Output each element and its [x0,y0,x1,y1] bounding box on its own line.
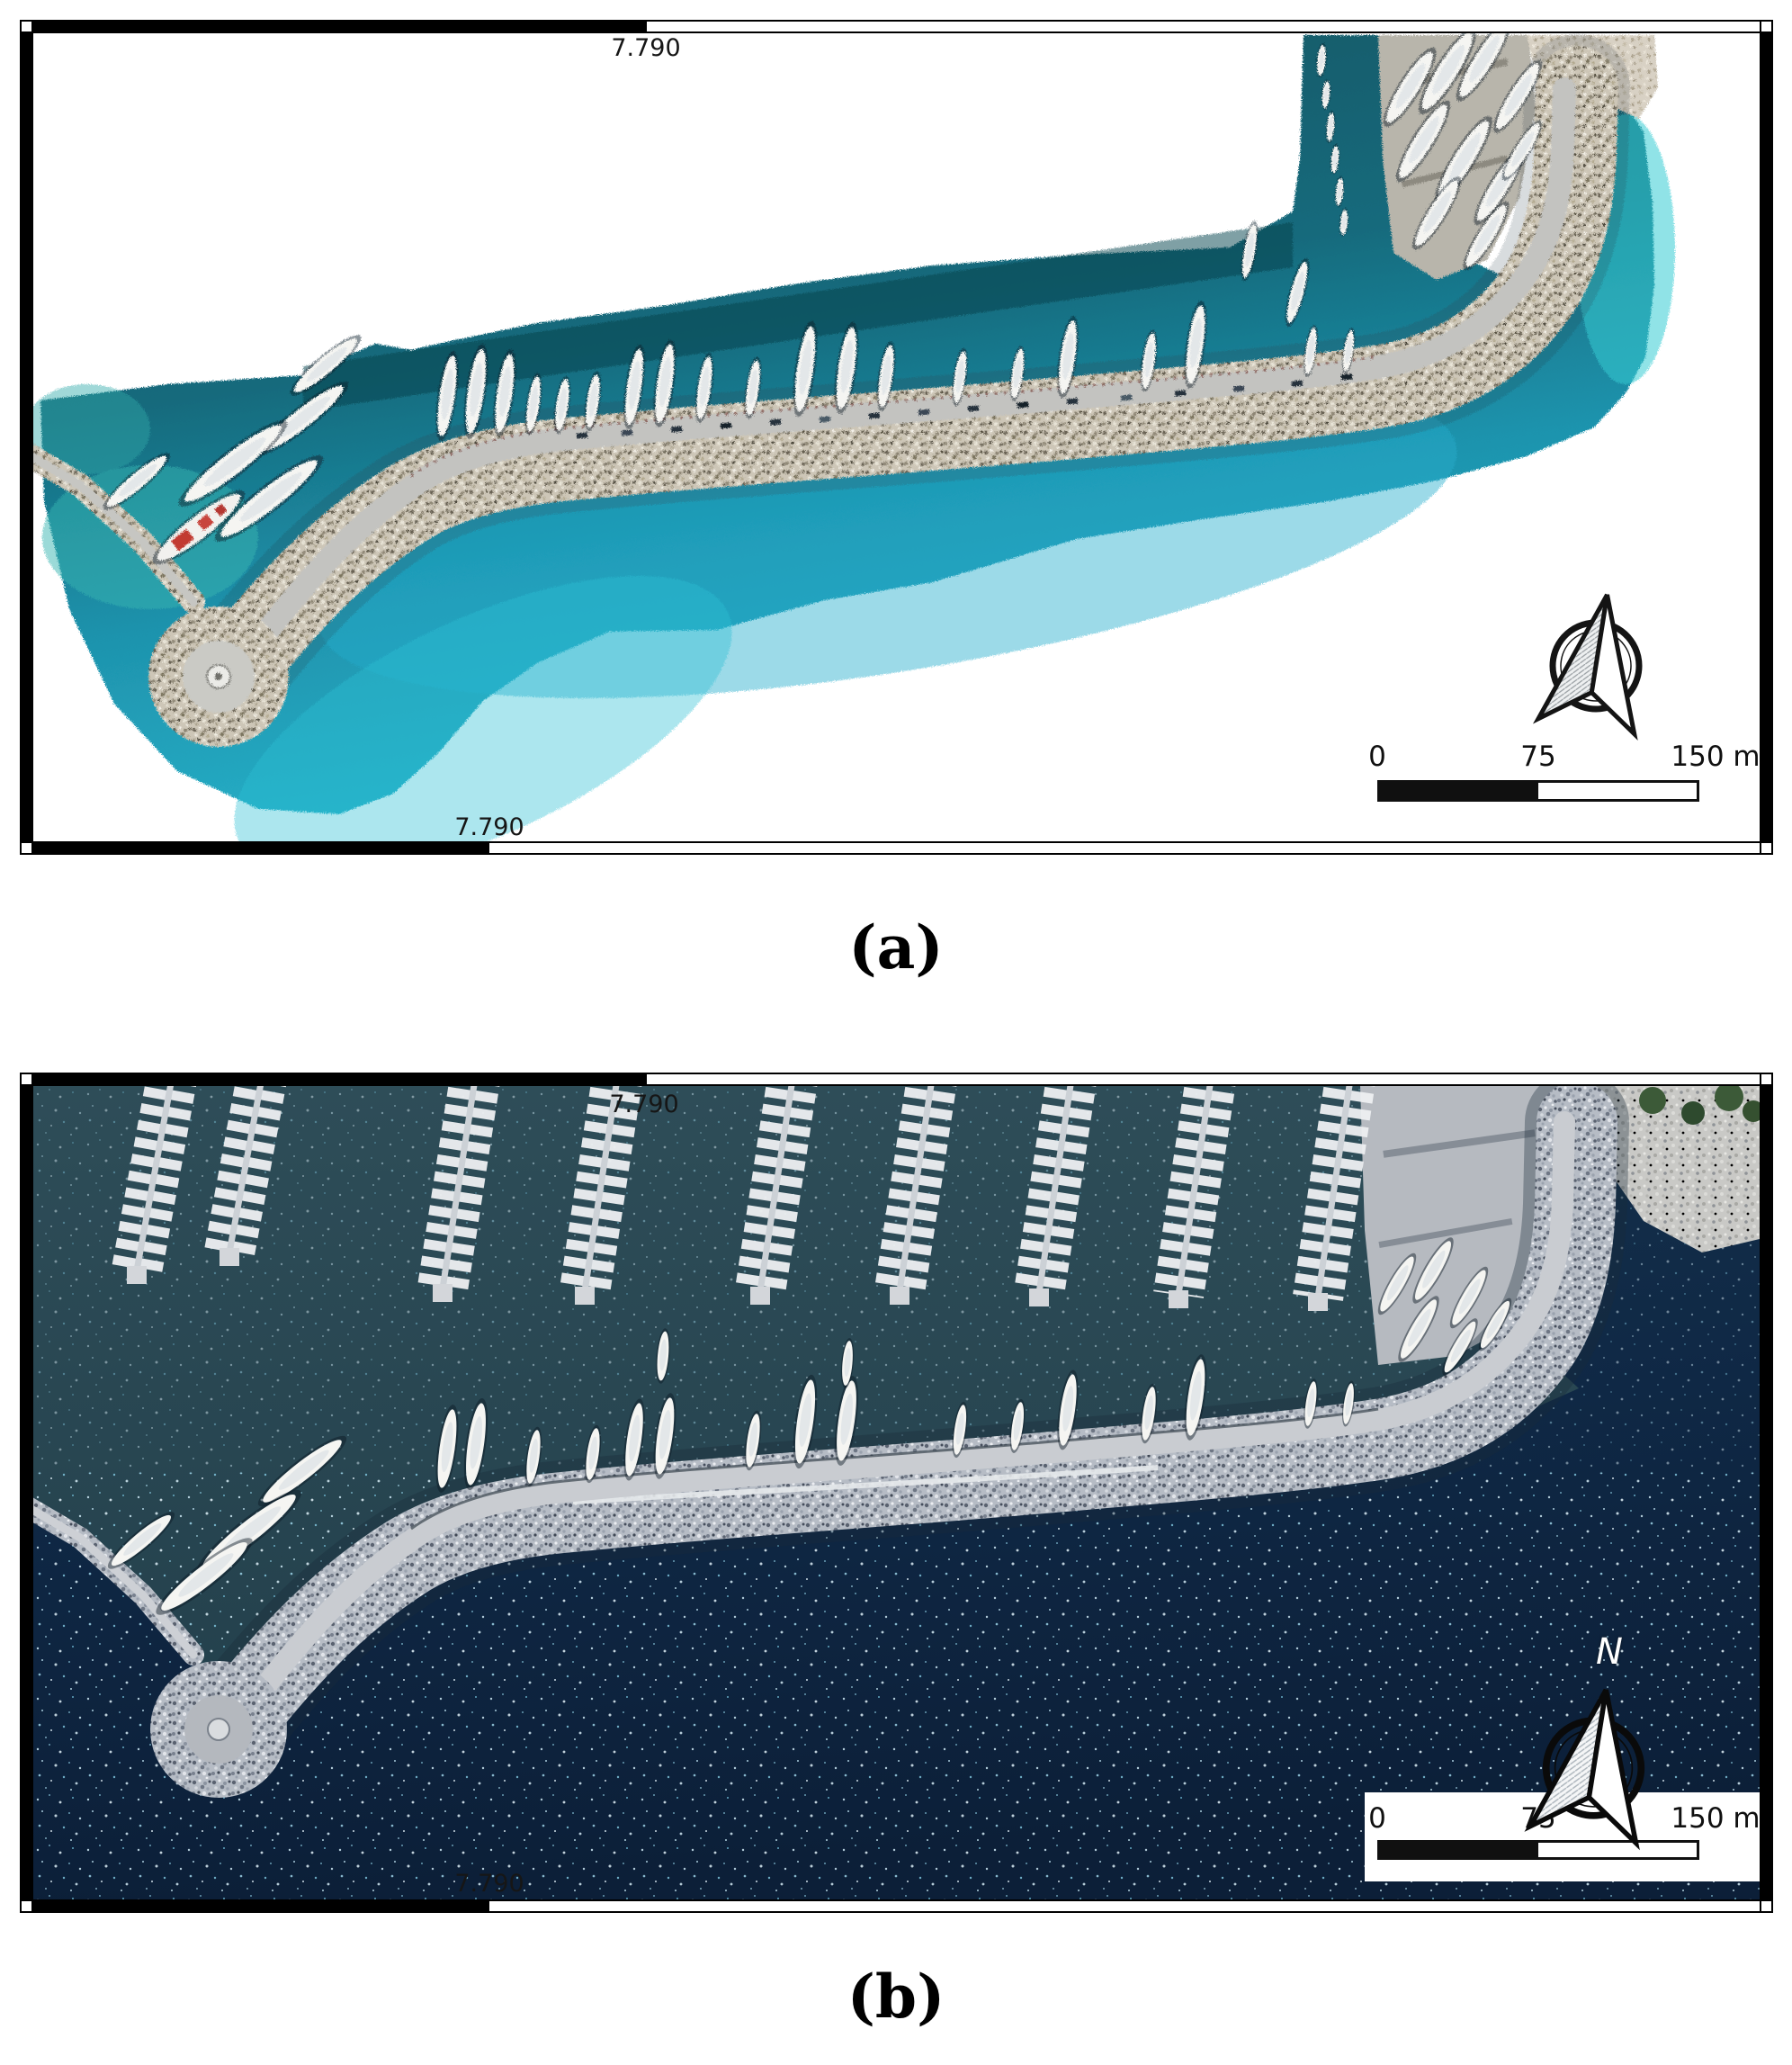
grid-label-top-b: 7.790 [609,1091,678,1118]
orthomosaic-scene-a [33,33,1760,841]
grid-label-bottom-b: 7.790 [454,1871,524,1898]
frame-corner-icon [1760,1073,1773,1086]
scale-tick-150: 150 m [1671,741,1760,773]
grid-label-bottom-a: 7.790 [454,814,524,841]
north-arrow-icon [1528,576,1663,756]
satellite-map-b: 7.790 7.790 N 0 75 150 m [33,1086,1760,1899]
frame-corner-icon [20,1899,33,1913]
frame-corner-icon [1760,20,1773,33]
breakwater-roundhead-b [150,1661,287,1798]
map-frame-top-a [31,20,1761,33]
tree-icon [1639,1087,1666,1114]
orthomosaic-a [33,33,1675,841]
orthomosaic-map-a: 7.790 7.790 0 75 150 m [33,33,1760,841]
lighthouse-icon [208,1719,229,1740]
map-frame-left-a [20,31,33,843]
grid-label-top-a: 7.790 [611,35,680,62]
breakwater-roundhead-a [148,606,289,747]
scale-tick-75: 75 [1520,741,1555,773]
frame-corner-icon [20,1073,33,1086]
map-frame-bottom-a [31,841,1761,855]
caption-b: (b) [0,1962,1792,2032]
scale-bar-a: 0 75 150 m [1377,741,1699,802]
map-frame-right-a [1760,31,1773,843]
scale-tick-150: 150 m [1671,1802,1760,1835]
frame-corner-icon [20,20,33,33]
map-panel-a: 7.790 7.790 0 75 150 m [20,20,1773,855]
map-frame-left-b [20,1084,33,1901]
map-frame-right-b [1760,1084,1773,1901]
map-frame-top-b [31,1073,1761,1086]
frame-corner-icon [20,841,33,855]
north-label: N [1596,1631,1623,1673]
north-arrow-icon [1519,1669,1668,1867]
frame-corner-icon [1760,841,1773,855]
satellite-scene-b [33,1086,1760,1899]
caption-a: (a) [0,912,1792,983]
map-frame-bottom-b [31,1899,1761,1913]
scale-tick-0: 0 [1368,741,1386,773]
scale-tick-0: 0 [1368,1802,1386,1835]
scale-bar-segments [1377,780,1699,802]
map-panel-b: 7.790 7.790 N 0 75 150 m [20,1073,1773,1913]
tree-icon [1681,1101,1705,1125]
frame-corner-icon [1760,1899,1773,1913]
